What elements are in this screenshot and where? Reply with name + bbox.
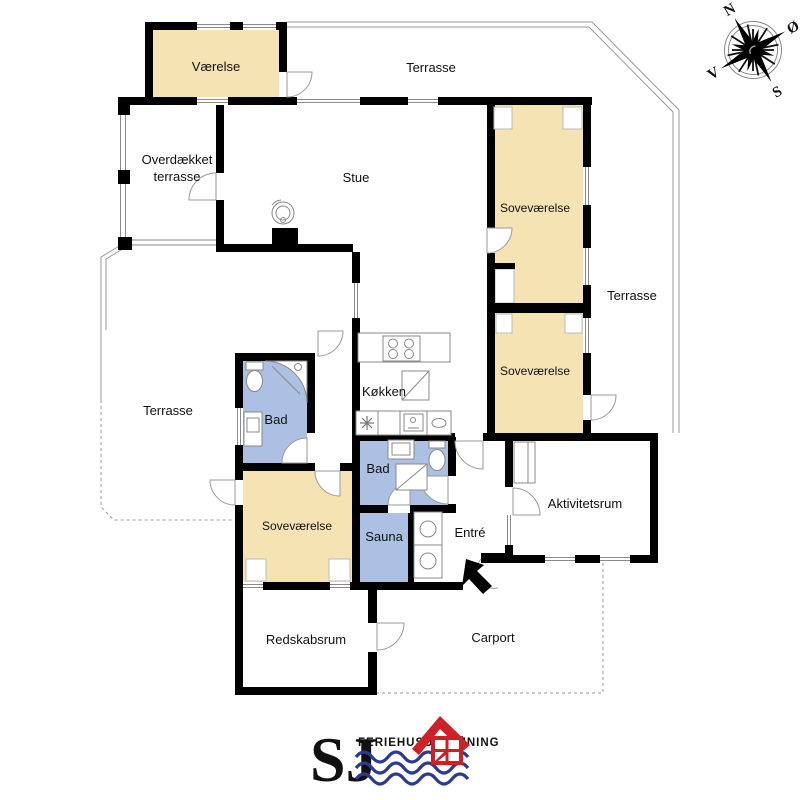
label-koekken: Køkken (362, 384, 406, 399)
label-sovevaerelse-2: Soveværelse (500, 364, 570, 378)
furniture (329, 559, 350, 581)
furniture (496, 314, 512, 333)
door-vaerelse (287, 72, 312, 97)
label-overdaekket-1: Overdækket (142, 152, 213, 167)
post (118, 237, 132, 250)
room-area-sauna (358, 513, 408, 582)
floor-plan: Værelse Terrasse Overdækket terrasse Stu… (0, 0, 800, 800)
furniture (494, 107, 512, 129)
door-aktivitetsrum (513, 488, 540, 515)
label-carport: Carport (471, 630, 515, 645)
label-vaerelse: Værelse (192, 59, 240, 74)
laundry-stack-icon (414, 512, 442, 578)
compass-south-label: S (770, 83, 785, 101)
door-redskabsrum (377, 623, 404, 650)
label-terrasse-top: Terrasse (406, 60, 456, 75)
floor-plan-page: Værelse Terrasse Overdækket terrasse Stu… (0, 0, 800, 800)
furniture (563, 107, 582, 129)
compass-rose-icon: N Ø S V (681, 0, 800, 125)
toilet-icon (429, 450, 445, 471)
wardrobe-icon (514, 442, 535, 483)
logo-initials: SJ (310, 724, 378, 795)
label-bad-1: Bad (264, 412, 287, 427)
door-sovevaerelse-2-terrasse (591, 395, 616, 420)
label-sovevaerelse-3: Soveværelse (262, 519, 332, 533)
label-sauna: Sauna (365, 529, 403, 544)
compass-west-label: V (705, 64, 723, 83)
furniture (246, 559, 266, 581)
freezer-icon (360, 416, 374, 430)
label-sovevaerelse-1: Soveværelse (500, 201, 570, 215)
toilet-tank-icon (246, 362, 263, 370)
furniture (565, 314, 582, 333)
toilet-icon (247, 371, 263, 392)
label-aktivitetsrum: Aktivitetsrum (548, 496, 622, 511)
entrance-arrow (462, 559, 492, 594)
door-entre-inner (455, 441, 483, 469)
closet (495, 269, 514, 303)
label-terrasse-right: Terrasse (607, 288, 657, 303)
wood-stove-icon (272, 200, 294, 224)
compass-east-label: Ø (784, 18, 800, 38)
toilet-tank-icon (429, 441, 445, 448)
post (118, 105, 130, 115)
label-redskabsrum: Redskabsrum (266, 632, 346, 647)
post (118, 170, 130, 184)
label-terrasse-left: Terrasse (143, 403, 193, 418)
chimney (272, 228, 298, 244)
label-entre: Entré (454, 525, 485, 540)
door-stue-hall (318, 331, 343, 356)
label-stue: Stue (343, 170, 370, 185)
door-sovevaerelse-3-terrasse (210, 480, 235, 505)
label-overdaekket-2: terrasse (154, 169, 201, 184)
label-bad-2: Bad (366, 461, 389, 476)
brand-logo: SJ FERIEHUSUDLEJNING (310, 716, 500, 795)
compass-north-label: N (721, 0, 739, 19)
